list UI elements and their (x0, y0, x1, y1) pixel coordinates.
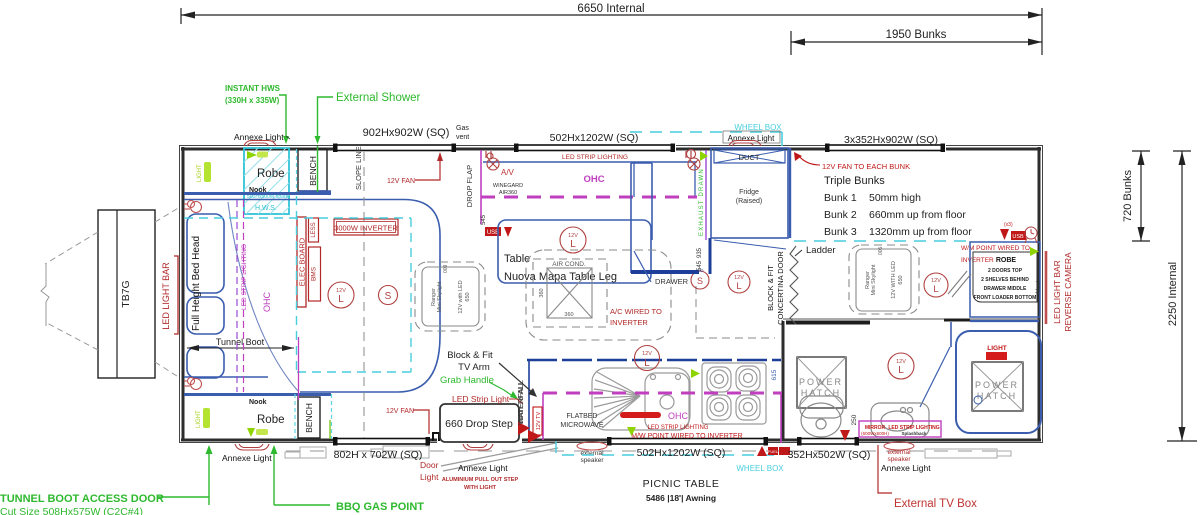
svg-text:Grab Handle: Grab Handle (440, 375, 494, 386)
svg-text:Ladder: Ladder (806, 245, 836, 256)
svg-text:12V with LED: 12V with LED (458, 280, 464, 313)
svg-text:L: L (933, 284, 938, 295)
svg-text:LESS: LESS (311, 222, 317, 237)
svg-text:545: 545 (481, 214, 487, 225)
svg-text:Bunk 3: Bunk 3 (824, 226, 857, 238)
svg-text:INVERTER: INVERTER (961, 257, 994, 264)
svg-text:EXHAUST DRAWN: EXHAUST DRAWN (699, 168, 705, 236)
svg-text:BBQ GAS POINT: BBQ GAS POINT (336, 501, 424, 513)
svg-text:DROP FLAP: DROP FLAP (465, 165, 474, 207)
svg-text:360: 360 (564, 312, 573, 318)
svg-text:A/C WIRED TO: A/C WIRED TO (610, 307, 662, 316)
svg-text:OHC: OHC (583, 174, 604, 185)
svg-text:650: 650 (898, 275, 904, 284)
svg-text:Table: Table (504, 253, 530, 265)
svg-text:Mini Skylight: Mini Skylight (871, 264, 877, 295)
svg-text:AIR360: AIR360 (499, 190, 517, 196)
svg-text:DRAWER: DRAWER (655, 277, 689, 286)
svg-text:external: external (887, 449, 911, 456)
svg-text:vent: vent (456, 134, 469, 141)
svg-text:50mm high: 50mm high (869, 192, 921, 204)
svg-text:DUCT: DUCT (739, 153, 760, 162)
svg-text:Fridge: Fridge (739, 189, 759, 196)
svg-text:LED Strip Light: LED Strip Light (452, 394, 510, 404)
svg-text:FUEL: FUEL (768, 449, 779, 454)
svg-text:BENCH: BENCH (304, 403, 314, 433)
svg-text:660 Drop Step: 660 Drop Step (445, 418, 513, 430)
svg-text:FLATBED: FLATBED (567, 413, 598, 420)
svg-text:250: 250 (851, 414, 858, 425)
svg-text:S: S (385, 291, 392, 302)
svg-text:LIGHT: LIGHT (196, 410, 202, 428)
svg-text:LED LIGHT BAR: LED LIGHT BAR (161, 262, 171, 330)
svg-text:POWER: POWER (799, 377, 843, 387)
svg-text:Block & Fit: Block & Fit (447, 350, 493, 361)
svg-text:H.W.S.: H.W.S. (255, 205, 277, 212)
svg-text:650: 650 (465, 292, 471, 301)
svg-text:5486 |18'| Awning: 5486 |18'| Awning (646, 493, 716, 503)
svg-text:speaker: speaker (887, 456, 911, 463)
svg-text:935: 935 (697, 247, 703, 258)
svg-text:S: S (697, 276, 703, 286)
svg-text:6650 Internal: 6650 Internal (577, 3, 644, 15)
svg-text:REVERSE CAMERA: REVERSE CAMERA (1063, 252, 1073, 332)
svg-text:005: 005 (878, 246, 884, 255)
svg-text:502Hx1202W (SQ): 502Hx1202W (SQ) (637, 447, 726, 459)
svg-text:DRAWER MIDDLE: DRAWER MIDDLE (984, 286, 1027, 292)
svg-text:720 Bunks: 720 Bunks (1122, 170, 1134, 222)
svg-text:2 DOORS TOP: 2 DOORS TOP (988, 268, 1023, 274)
svg-text:HATCH: HATCH (977, 391, 1017, 401)
svg-text:WITH LIGHT: WITH LIGHT (464, 485, 497, 491)
svg-text:2 SHELVES BEHIND: 2 SHELVES BEHIND (981, 277, 1029, 283)
svg-text:2250 Internal: 2250 Internal (1167, 262, 1179, 326)
svg-text:902Hx902W (SQ): 902Hx902W (SQ) (363, 127, 450, 139)
svg-text:1950 Bunks: 1950 Bunks (886, 29, 947, 41)
svg-text:Triple Bunks: Triple Bunks (824, 175, 885, 187)
svg-text:LED STRIP LIGHTING: LED STRIP LIGHTING (241, 244, 248, 310)
svg-text:External TV Box: External TV Box (894, 498, 977, 510)
svg-text:Robe: Robe (257, 414, 285, 426)
svg-text:Mini Skylight: Mini Skylight (437, 281, 443, 312)
svg-text:W/M POINT WIRED TO: W/M POINT WIRED TO (961, 245, 1030, 252)
svg-text:AIR COND.: AIR COND. (552, 261, 586, 268)
svg-text:LED LIGHT BAR: LED LIGHT BAR (1052, 260, 1062, 324)
svg-text:Nook: Nook (249, 399, 267, 406)
svg-text:TUNNEL BOOT ACCESS DOOR: TUNNEL BOOT ACCESS DOOR (0, 493, 164, 505)
svg-text:External Shower: External Shower (336, 92, 421, 104)
svg-text:Door: Door (420, 460, 439, 470)
svg-text:LIGHT: LIGHT (987, 345, 1007, 352)
svg-text:WATERFALL: WATERFALL (516, 381, 525, 425)
svg-text:BMS: BMS (311, 266, 318, 281)
svg-text:Nuova Mapa Table Leg: Nuova Mapa Table Leg (504, 271, 617, 283)
svg-text:INSTANT HWS: INSTANT HWS (225, 84, 281, 93)
svg-text:OHC: OHC (262, 292, 272, 313)
svg-text:009: 009 (443, 264, 449, 273)
svg-text:Tunnel Boot: Tunnel Boot (216, 337, 265, 347)
svg-text:Full Height Bed Head: Full Height Bed Head (191, 236, 202, 331)
svg-text:Bunk 2: Bunk 2 (824, 209, 857, 221)
svg-text:LED STRIP LIGHTING: LED STRIP LIGHTING (648, 425, 709, 431)
svg-text:LIGHT: LIGHT (197, 164, 203, 182)
svg-text:SLOPE LINE: SLOPE LINE (354, 146, 363, 190)
svg-text:INVERTER: INVERTER (610, 318, 648, 327)
svg-text:L: L (898, 365, 904, 376)
svg-text:ROBE: ROBE (996, 257, 1017, 264)
svg-text:L: L (338, 294, 344, 305)
svg-text:TV Arm: TV Arm (458, 362, 490, 373)
svg-text:(600Wx600H): (600Wx600H) (861, 431, 889, 436)
svg-text:Light: Light (420, 472, 439, 482)
svg-text:12V FAN: 12V FAN (386, 408, 414, 415)
svg-text:12V FAN: 12V FAN (387, 178, 415, 185)
svg-text:Annexe Light: Annexe Light (458, 463, 508, 473)
svg-text:L: L (644, 358, 650, 369)
svg-text:(330H x 335W): (330H x 335W) (225, 96, 280, 105)
svg-text:BLOCK & FIT: BLOCK & FIT (766, 265, 775, 311)
svg-text:3x352Hx902W (SQ): 3x352Hx902W (SQ) (844, 134, 938, 146)
svg-text:CONCERTINA DOOR: CONCERTINA DOOR (776, 251, 785, 325)
svg-text:(x3): (x3) (1004, 222, 1013, 228)
svg-text:speaker: speaker (580, 457, 604, 464)
svg-text:(Raised): (Raised) (736, 198, 762, 205)
svg-text:12V TV: 12V TV (536, 412, 542, 431)
svg-text:ALUMINIUM PULL OUT STEP: ALUMINIUM PULL OUT STEP (442, 477, 519, 483)
svg-text:L: L (570, 239, 576, 250)
svg-text:Annexe Light: Annexe Light (222, 453, 272, 463)
svg-text:WHEEL BOX: WHEEL BOX (736, 464, 784, 473)
svg-text:12V: 12V (642, 351, 652, 357)
svg-text:LED STRIP LIGHTING: LED STRIP LIGHTING (562, 154, 628, 161)
svg-text:502Hx1202W (SQ): 502Hx1202W (SQ) (550, 132, 639, 144)
svg-text:Bunk 1: Bunk 1 (824, 192, 857, 204)
svg-text:OHC: OHC (668, 411, 689, 421)
svg-text:PICNIC TABLE: PICNIC TABLE (643, 478, 720, 490)
svg-text:Robe: Robe (257, 168, 285, 180)
svg-text:M/W POINT WIRED TO INVERTER: M/W POINT WIRED TO INVERTER (631, 433, 743, 440)
svg-text:615: 615 (771, 369, 778, 380)
svg-text:545: 545 (697, 260, 703, 271)
svg-text:Cut Size 508Hx575W (C2C#4): Cut Size 508Hx575W (C2C#4) (0, 506, 143, 515)
svg-text:FRONT LOADER BOTTOM: FRONT LOADER BOTTOM (974, 295, 1037, 301)
svg-text:TB7G: TB7G (120, 280, 132, 307)
svg-text:USB: USB (1012, 234, 1024, 240)
svg-text:Gas: Gas (456, 125, 469, 132)
svg-text:BENCH: BENCH (308, 156, 318, 186)
svg-text:352Hx502W (SQ): 352Hx502W (SQ) (788, 449, 871, 461)
svg-text:A/V: A/V (501, 168, 515, 177)
svg-text:WINEGARD: WINEGARD (493, 183, 523, 189)
svg-text:external: external (580, 450, 604, 457)
svg-text:L: L (736, 281, 741, 292)
svg-text:Annexe Light: Annexe Light (881, 463, 931, 473)
svg-text:ELEC BOARD: ELEC BOARD (298, 237, 307, 286)
svg-text:Annexe Light: Annexe Light (728, 134, 775, 143)
svg-text:360: 360 (539, 288, 545, 297)
svg-text:3000W INVERTER: 3000W INVERTER (334, 224, 398, 233)
svg-text:12V FAN TO EACH BUNK: 12V FAN TO EACH BUNK (822, 162, 910, 171)
svg-text:12V WITH LED: 12V WITH LED (891, 261, 897, 299)
svg-text:POWER: POWER (975, 380, 1019, 390)
svg-text:Splashback: Splashback (901, 431, 927, 436)
svg-text:1320mm up from floor: 1320mm up from floor (869, 226, 972, 238)
svg-text:Vent: Vent (1036, 281, 1042, 293)
svg-text:802H x 702W (SQ): 802H x 702W (SQ) (334, 449, 423, 461)
svg-text:660mm up from floor: 660mm up from floor (869, 209, 966, 221)
svg-text:MICROWAVE: MICROWAVE (560, 422, 603, 429)
